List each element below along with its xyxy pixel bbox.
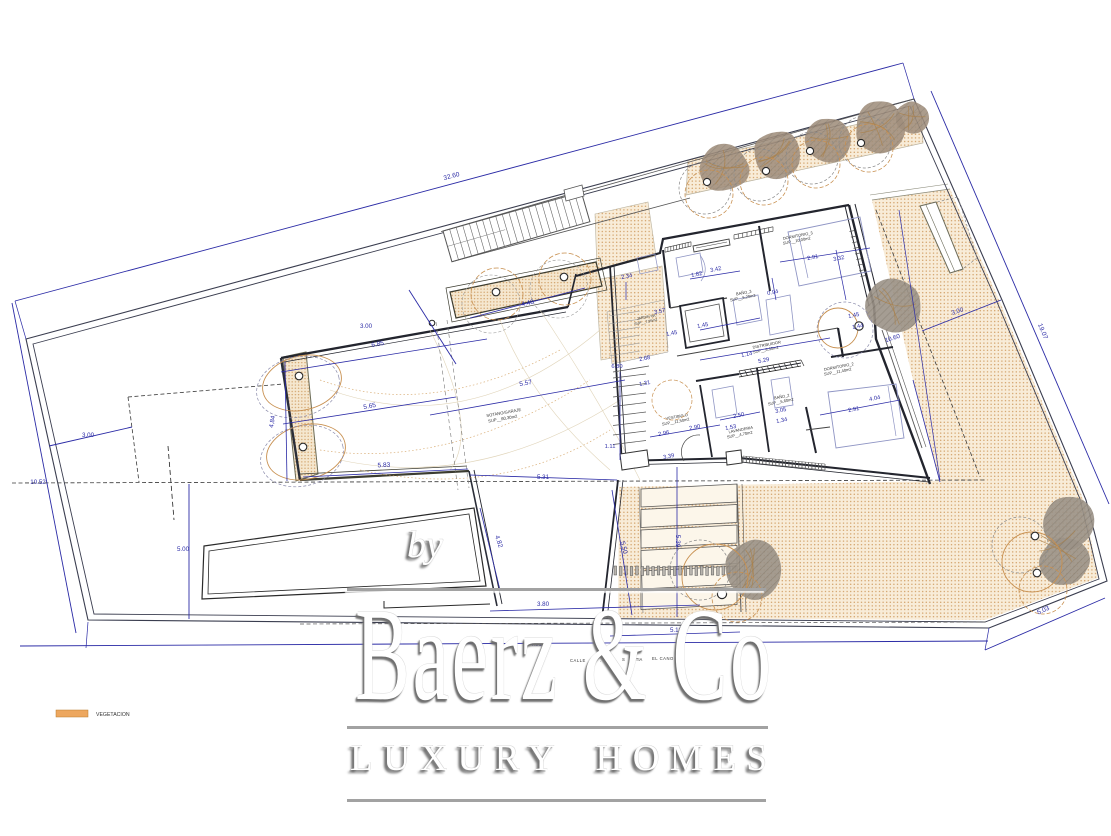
svg-text:1.11: 1.11 xyxy=(605,444,616,450)
svg-text:3.00: 3.00 xyxy=(82,432,95,439)
svg-text:5.00: 5.00 xyxy=(177,546,190,553)
svg-text:VEGETACION: VEGETACION xyxy=(96,712,130,718)
svg-text:5.39: 5.39 xyxy=(674,535,681,548)
svg-text:3.00: 3.00 xyxy=(360,323,373,330)
svg-text:10.52: 10.52 xyxy=(30,479,46,486)
svg-text:6.80: 6.80 xyxy=(611,364,622,370)
svg-text:5.83: 5.83 xyxy=(377,462,390,470)
